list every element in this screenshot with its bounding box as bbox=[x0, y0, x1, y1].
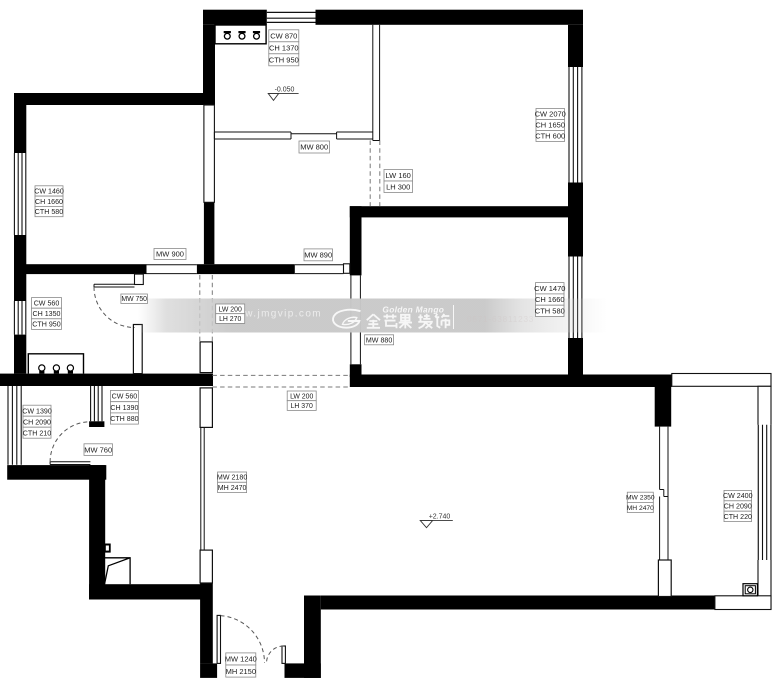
svg-text:CTH 220: CTH 220 bbox=[724, 513, 752, 521]
svg-text:MW 880: MW 880 bbox=[366, 336, 392, 344]
svg-text:CW 1460: CW 1460 bbox=[34, 188, 64, 196]
svg-text:CH 1660: CH 1660 bbox=[535, 295, 565, 304]
svg-text:+2.740: +2.740 bbox=[429, 513, 451, 520]
svg-text:MW 1240: MW 1240 bbox=[225, 655, 257, 664]
svg-text:MW 2350: MW 2350 bbox=[626, 495, 655, 502]
svg-text:MH 2470: MH 2470 bbox=[627, 505, 654, 512]
svg-text:LH 370: LH 370 bbox=[291, 403, 313, 410]
svg-text:MW 900: MW 900 bbox=[156, 250, 184, 259]
svg-text:CH 1370: CH 1370 bbox=[269, 44, 299, 53]
svg-text:CTH 950: CTH 950 bbox=[32, 321, 60, 329]
svg-text:CW 560: CW 560 bbox=[34, 300, 60, 308]
svg-text:LH 300: LH 300 bbox=[386, 182, 410, 191]
svg-text:Golden Mango: Golden Mango bbox=[382, 305, 444, 315]
svg-text:LH 270: LH 270 bbox=[219, 316, 241, 323]
svg-text:CTH 950: CTH 950 bbox=[269, 56, 299, 65]
svg-text:CTH 580: CTH 580 bbox=[535, 307, 565, 316]
svg-text:MH 2470: MH 2470 bbox=[218, 484, 247, 492]
svg-text:CTH 600: CTH 600 bbox=[535, 132, 565, 141]
svg-text:LW 160: LW 160 bbox=[386, 171, 411, 180]
svg-text:MH 2150: MH 2150 bbox=[226, 667, 256, 676]
svg-text:LW 200: LW 200 bbox=[290, 393, 313, 400]
svg-text:CW 1470: CW 1470 bbox=[534, 284, 565, 293]
svg-text:MW 760: MW 760 bbox=[84, 445, 112, 454]
svg-text:LW 200: LW 200 bbox=[219, 306, 242, 313]
svg-text:CH 2090: CH 2090 bbox=[23, 418, 51, 426]
svg-text:CH 1650: CH 1650 bbox=[535, 121, 565, 130]
svg-text:CH 1390: CH 1390 bbox=[110, 404, 138, 412]
svg-text:CW 2070: CW 2070 bbox=[535, 110, 566, 119]
svg-text:CH 1660: CH 1660 bbox=[35, 198, 63, 206]
svg-text:CW 2400: CW 2400 bbox=[723, 492, 753, 500]
svg-text:-0.050: -0.050 bbox=[275, 86, 295, 93]
svg-text:CH 2090: CH 2090 bbox=[724, 503, 752, 511]
svg-text:CW 560: CW 560 bbox=[112, 393, 138, 401]
svg-text:CW 870: CW 870 bbox=[270, 32, 297, 41]
svg-text:MW 750: MW 750 bbox=[121, 296, 147, 303]
svg-text:CW 1390: CW 1390 bbox=[22, 407, 52, 415]
svg-text:CTH 580: CTH 580 bbox=[35, 208, 63, 216]
svg-text:MW 800: MW 800 bbox=[300, 143, 328, 152]
svg-text:CH 1350: CH 1350 bbox=[33, 310, 61, 318]
svg-text:CTH 880: CTH 880 bbox=[110, 415, 138, 423]
svg-text:CTH 210: CTH 210 bbox=[23, 429, 51, 437]
svg-text:0871-63811233: 0871-63811233 bbox=[467, 315, 534, 324]
svg-text:MW 890: MW 890 bbox=[304, 251, 332, 260]
svg-text:MW 2180: MW 2180 bbox=[217, 474, 247, 482]
